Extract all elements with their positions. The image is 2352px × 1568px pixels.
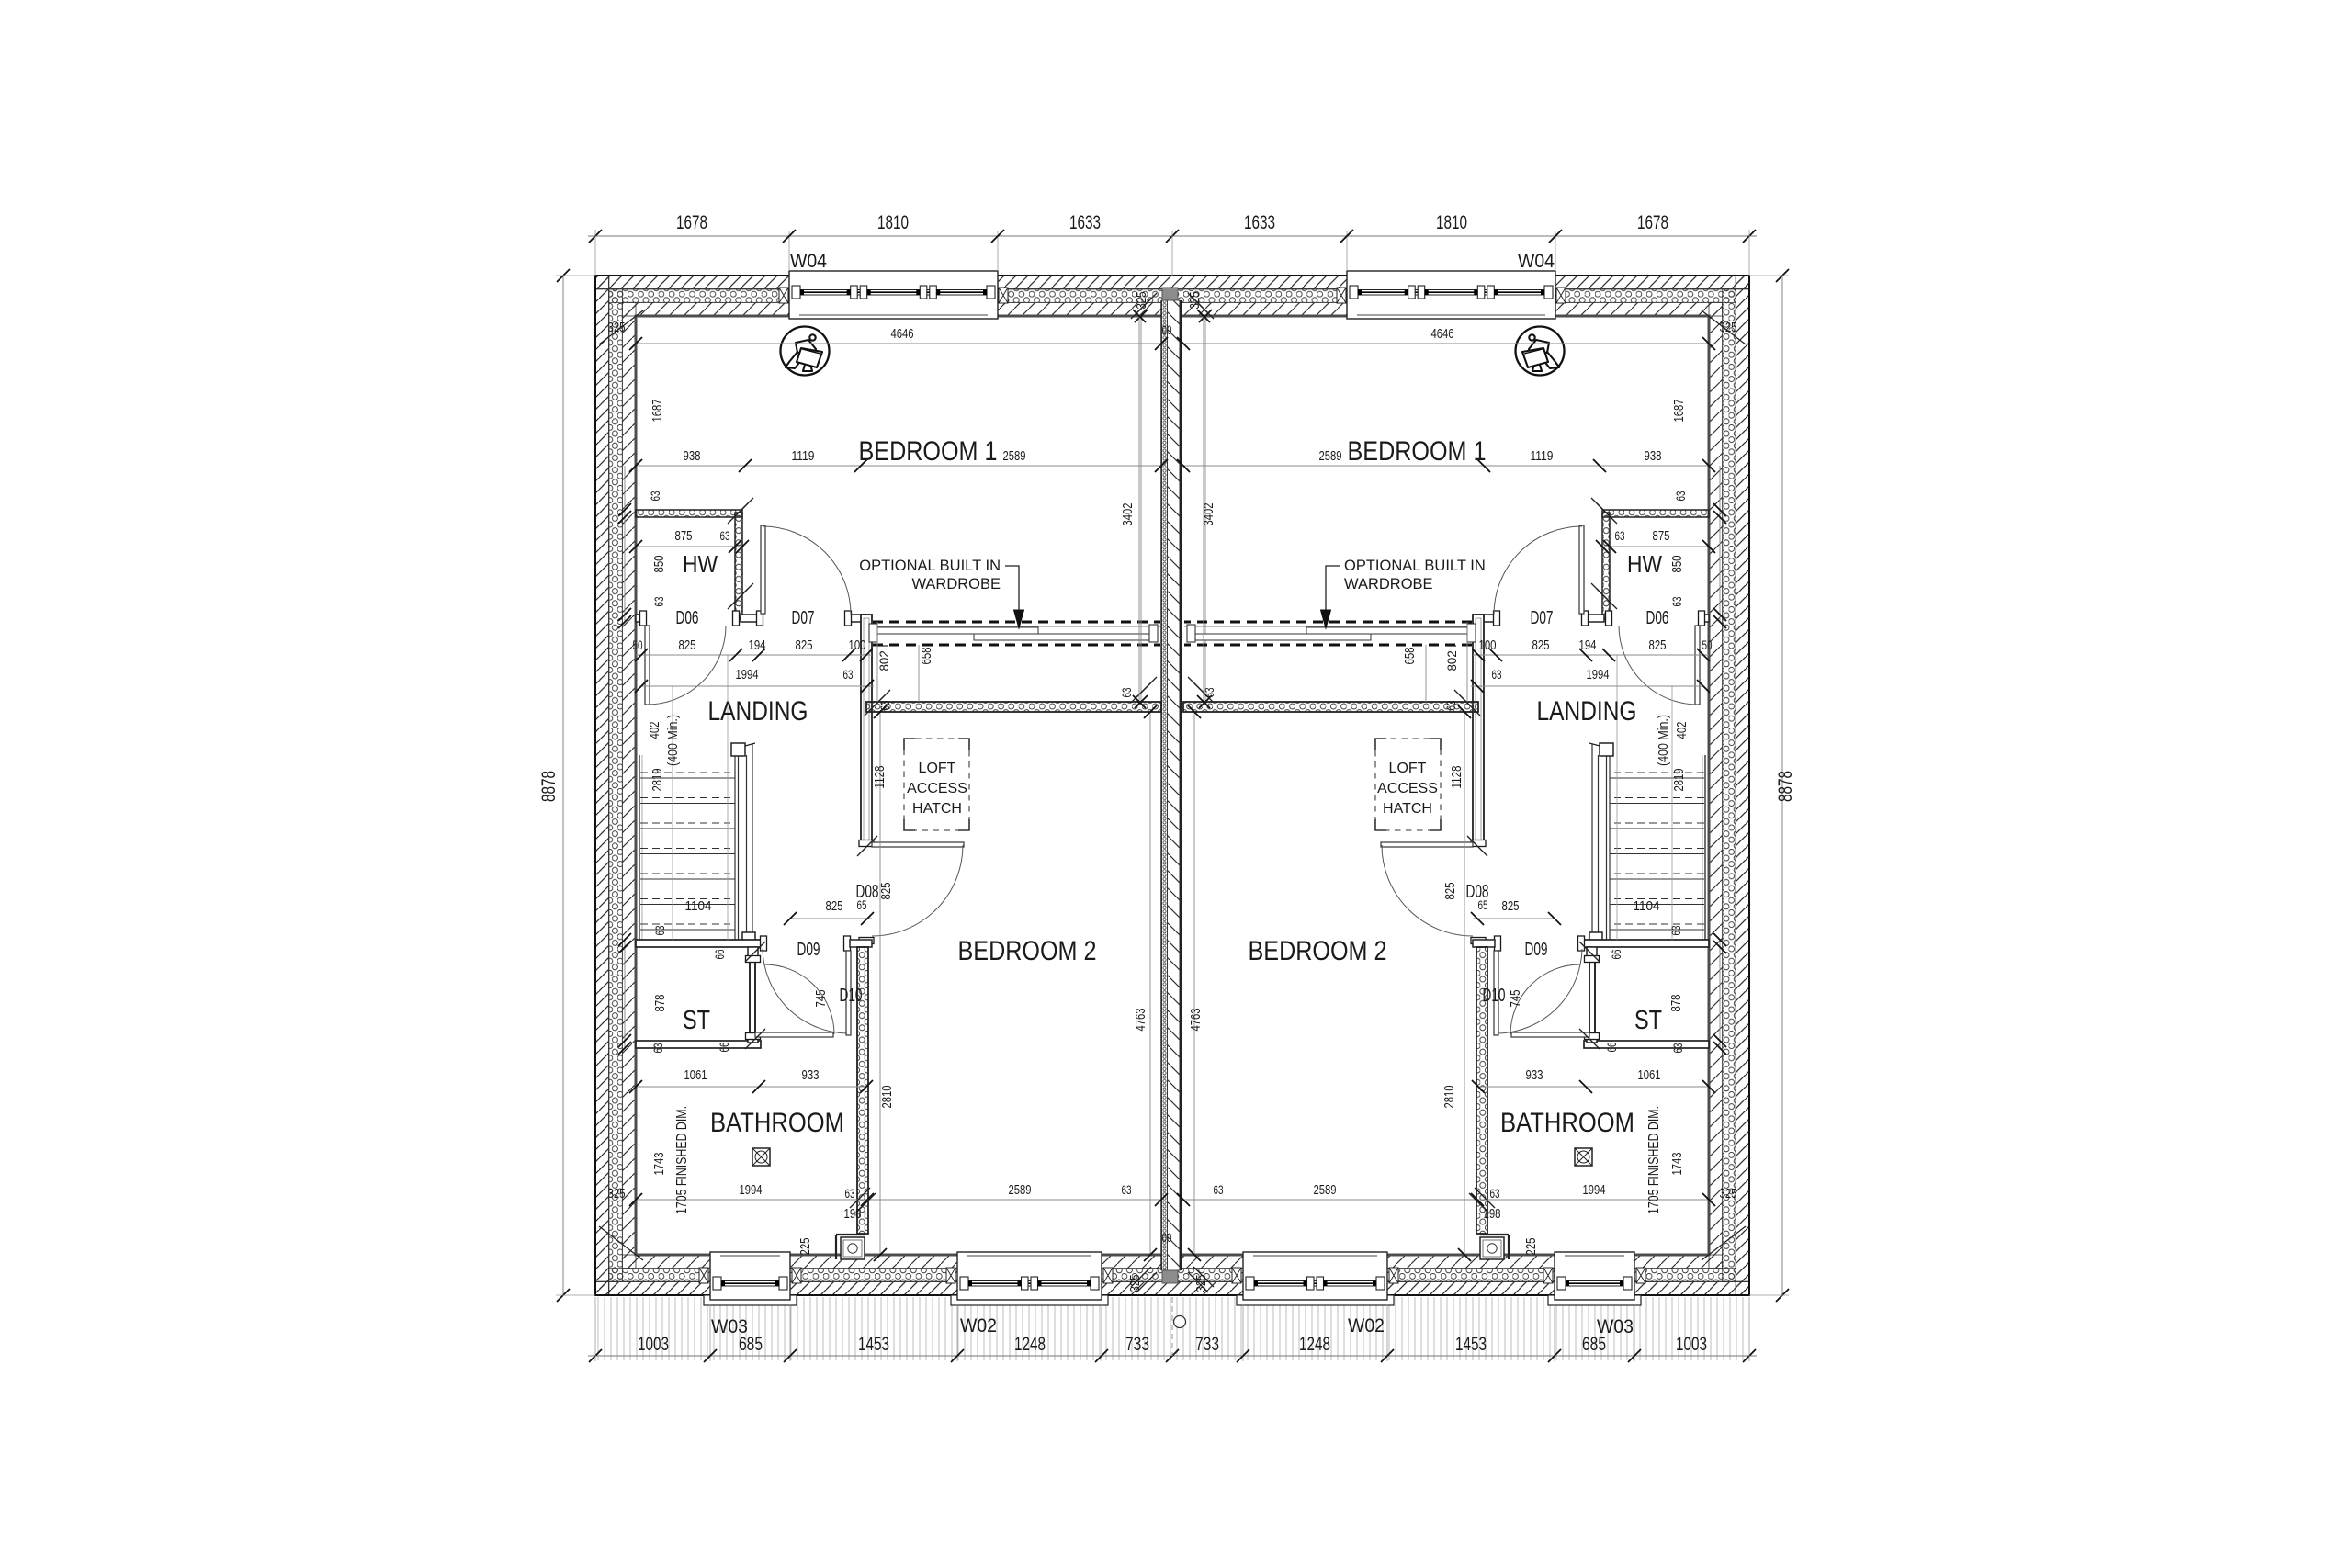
svg-text:325: 325 xyxy=(1127,1275,1143,1292)
svg-text:63: 63 xyxy=(1674,491,1688,502)
svg-text:325: 325 xyxy=(608,320,626,335)
svg-text:3402: 3402 xyxy=(1201,503,1216,526)
svg-text:63: 63 xyxy=(653,926,667,936)
svg-text:W02: W02 xyxy=(1348,1315,1385,1337)
svg-text:LOFT: LOFT xyxy=(1389,761,1427,776)
svg-text:1119: 1119 xyxy=(1531,448,1554,464)
svg-text:(400 Min.): (400 Min.) xyxy=(665,715,681,766)
svg-text:BEDROOM 2: BEDROOM 2 xyxy=(958,936,1097,966)
svg-text:63: 63 xyxy=(1122,1183,1132,1197)
svg-text:198: 198 xyxy=(844,1206,862,1222)
svg-text:1453: 1453 xyxy=(1455,1334,1487,1355)
svg-text:66: 66 xyxy=(1610,950,1623,960)
svg-text:733: 733 xyxy=(1195,1334,1219,1355)
svg-text:1687: 1687 xyxy=(1671,400,1687,423)
svg-text:402: 402 xyxy=(1674,722,1690,739)
svg-text:BEDROOM 1: BEDROOM 1 xyxy=(1348,436,1487,467)
svg-text:1705 FINISHED DIM.: 1705 FINISHED DIM. xyxy=(1646,1106,1662,1214)
svg-text:ST: ST xyxy=(683,1006,710,1035)
svg-text:63: 63 xyxy=(1203,688,1216,698)
svg-text:HW: HW xyxy=(683,550,718,578)
svg-text:ACCESS: ACCESS xyxy=(907,781,967,796)
svg-text:325: 325 xyxy=(1720,1186,1737,1201)
svg-text:2810: 2810 xyxy=(879,1086,895,1109)
svg-text:1687: 1687 xyxy=(650,400,665,423)
svg-text:1119: 1119 xyxy=(792,448,815,464)
svg-text:63: 63 xyxy=(1492,668,1502,682)
svg-text:1705 FINISHED DIM.: 1705 FINISHED DIM. xyxy=(674,1106,690,1214)
svg-text:745: 745 xyxy=(1508,990,1523,1008)
svg-text:933: 933 xyxy=(1526,1067,1543,1083)
svg-text:63: 63 xyxy=(843,668,854,682)
svg-text:63: 63 xyxy=(651,1043,665,1054)
svg-text:D09: D09 xyxy=(797,940,820,960)
svg-text:2819: 2819 xyxy=(650,769,665,792)
svg-text:3402: 3402 xyxy=(1120,503,1136,526)
svg-text:878: 878 xyxy=(652,995,668,1012)
svg-text:4763: 4763 xyxy=(1133,1009,1148,1032)
svg-text:325: 325 xyxy=(608,1186,626,1201)
svg-text:4646: 4646 xyxy=(891,326,914,342)
svg-text:825: 825 xyxy=(1649,637,1667,653)
svg-text:658: 658 xyxy=(1402,648,1418,665)
svg-text:2589: 2589 xyxy=(1009,1182,1032,1198)
svg-text:825: 825 xyxy=(796,637,813,653)
svg-text:4763: 4763 xyxy=(1188,1009,1204,1032)
svg-text:325: 325 xyxy=(1720,320,1737,335)
svg-text:1061: 1061 xyxy=(1638,1067,1661,1083)
svg-text:225: 225 xyxy=(797,1238,813,1256)
svg-text:WARDROBE: WARDROBE xyxy=(1344,576,1433,592)
svg-text:BATHROOM: BATHROOM xyxy=(1500,1108,1634,1138)
svg-text:658: 658 xyxy=(919,648,934,665)
svg-text:1453: 1453 xyxy=(858,1334,889,1355)
svg-text:63: 63 xyxy=(1670,597,1684,607)
svg-text:1003: 1003 xyxy=(638,1334,669,1355)
svg-text:63: 63 xyxy=(1444,701,1458,711)
svg-text:1633: 1633 xyxy=(1069,212,1101,233)
svg-text:LANDING: LANDING xyxy=(708,696,808,727)
svg-text:2819: 2819 xyxy=(1671,769,1687,792)
svg-text:825: 825 xyxy=(878,883,894,900)
svg-text:802 l: 802 l xyxy=(877,645,891,671)
svg-text:2589: 2589 xyxy=(1003,448,1026,464)
svg-text:63: 63 xyxy=(845,1187,855,1201)
svg-text:D07: D07 xyxy=(1531,608,1554,628)
svg-text:63: 63 xyxy=(1120,688,1134,698)
svg-text:66: 66 xyxy=(718,1043,731,1053)
svg-text:BEDROOM 2: BEDROOM 2 xyxy=(1249,936,1387,966)
svg-text:938: 938 xyxy=(1645,448,1662,464)
svg-text:825: 825 xyxy=(679,637,696,653)
svg-text:63: 63 xyxy=(1671,1043,1685,1054)
svg-text:63: 63 xyxy=(720,529,730,543)
svg-text:733: 733 xyxy=(1125,1334,1149,1355)
svg-text:D10: D10 xyxy=(1483,986,1506,1006)
svg-text:63: 63 xyxy=(1615,529,1625,543)
svg-text:00: 00 xyxy=(1162,1231,1172,1245)
svg-text:2810: 2810 xyxy=(1442,1086,1457,1109)
svg-text:850: 850 xyxy=(1669,556,1685,573)
svg-text:100: 100 xyxy=(849,637,866,653)
svg-text:63: 63 xyxy=(649,491,662,502)
svg-text:65: 65 xyxy=(857,898,867,912)
svg-text:1743: 1743 xyxy=(1669,1153,1685,1176)
svg-text:825: 825 xyxy=(826,898,843,914)
svg-text:63: 63 xyxy=(1669,926,1683,936)
svg-text:D06: D06 xyxy=(1646,608,1669,628)
svg-text:1003: 1003 xyxy=(1676,1334,1707,1355)
svg-text:1743: 1743 xyxy=(651,1153,667,1176)
svg-text:HATCH: HATCH xyxy=(1383,801,1432,817)
svg-text:802 l: 802 l xyxy=(1445,645,1459,671)
svg-text:W02: W02 xyxy=(960,1315,997,1337)
svg-text:1104: 1104 xyxy=(685,898,712,914)
svg-text:1994: 1994 xyxy=(736,667,759,682)
svg-text:325: 325 xyxy=(1134,292,1149,310)
svg-text:D10: D10 xyxy=(840,986,863,1006)
svg-text:938: 938 xyxy=(684,448,701,464)
svg-text:825: 825 xyxy=(1442,883,1458,900)
svg-text:LOFT: LOFT xyxy=(919,761,956,776)
svg-text:W04: W04 xyxy=(790,251,827,272)
svg-text:BEDROOM 1: BEDROOM 1 xyxy=(859,436,998,467)
svg-text:1678: 1678 xyxy=(676,212,707,233)
svg-text:66: 66 xyxy=(713,950,727,960)
svg-text:63: 63 xyxy=(652,597,666,607)
svg-text:OPTIONAL BUILT IN: OPTIONAL BUILT IN xyxy=(859,558,1001,574)
svg-text:HW: HW xyxy=(1627,550,1662,578)
svg-text:878: 878 xyxy=(1668,995,1684,1012)
svg-text:825: 825 xyxy=(1502,898,1520,914)
svg-text:50: 50 xyxy=(1702,638,1713,652)
svg-text:1994: 1994 xyxy=(740,1182,763,1198)
svg-text:BATHROOM: BATHROOM xyxy=(710,1108,844,1138)
svg-text:1994: 1994 xyxy=(1583,1182,1606,1198)
svg-text:1678: 1678 xyxy=(1637,212,1668,233)
svg-text:1104: 1104 xyxy=(1634,898,1660,914)
svg-text:ST: ST xyxy=(1634,1006,1662,1035)
svg-text:D07: D07 xyxy=(792,608,815,628)
svg-text:194: 194 xyxy=(1579,637,1597,653)
svg-text:1633: 1633 xyxy=(1244,212,1275,233)
svg-text:402: 402 xyxy=(647,722,662,739)
svg-text:50: 50 xyxy=(633,638,643,652)
svg-text:1810: 1810 xyxy=(877,212,909,233)
svg-text:8878: 8878 xyxy=(538,771,560,802)
svg-text:100: 100 xyxy=(1479,637,1497,653)
svg-text:(400 Min.): (400 Min.) xyxy=(1656,715,1671,766)
svg-text:225: 225 xyxy=(1523,1238,1539,1256)
svg-text:66: 66 xyxy=(1605,1043,1619,1053)
svg-text:1810: 1810 xyxy=(1436,212,1467,233)
svg-text:1994: 1994 xyxy=(1587,667,1610,682)
svg-text:825: 825 xyxy=(1532,637,1550,653)
svg-text:63: 63 xyxy=(1214,1183,1224,1197)
svg-text:LANDING: LANDING xyxy=(1537,696,1637,727)
svg-text:325: 325 xyxy=(1187,292,1203,310)
svg-text:OPTIONAL BUILT IN: OPTIONAL BUILT IN xyxy=(1344,558,1486,574)
svg-text:W03: W03 xyxy=(1597,1316,1634,1337)
svg-text:325: 325 xyxy=(1193,1275,1209,1292)
svg-text:1128: 1128 xyxy=(1449,766,1464,789)
svg-text:HATCH: HATCH xyxy=(912,801,962,817)
svg-text:63: 63 xyxy=(878,701,892,711)
svg-text:63: 63 xyxy=(1490,1187,1500,1201)
svg-text:D06: D06 xyxy=(676,608,699,628)
svg-text:00: 00 xyxy=(1162,323,1172,337)
svg-text:W04: W04 xyxy=(1518,251,1555,272)
svg-text:4646: 4646 xyxy=(1431,326,1454,342)
svg-text:875: 875 xyxy=(675,528,693,544)
svg-text:1248: 1248 xyxy=(1299,1334,1330,1355)
svg-text:WARDROBE: WARDROBE xyxy=(911,576,1001,592)
svg-text:194: 194 xyxy=(749,637,766,653)
svg-text:8878: 8878 xyxy=(1775,771,1796,802)
svg-text:198: 198 xyxy=(1484,1206,1501,1222)
svg-text:933: 933 xyxy=(802,1067,820,1083)
svg-text:65: 65 xyxy=(1478,898,1488,912)
svg-text:D09: D09 xyxy=(1525,940,1548,960)
svg-text:875: 875 xyxy=(1653,528,1670,544)
svg-text:ACCESS: ACCESS xyxy=(1377,781,1438,796)
svg-text:1248: 1248 xyxy=(1014,1334,1046,1355)
svg-text:1128: 1128 xyxy=(872,766,888,789)
svg-text:1061: 1061 xyxy=(684,1067,707,1083)
svg-text:745: 745 xyxy=(813,990,829,1008)
svg-text:850: 850 xyxy=(651,556,667,573)
svg-text:W03: W03 xyxy=(711,1316,748,1337)
svg-text:2589: 2589 xyxy=(1314,1182,1337,1198)
svg-text:2589: 2589 xyxy=(1319,448,1342,464)
